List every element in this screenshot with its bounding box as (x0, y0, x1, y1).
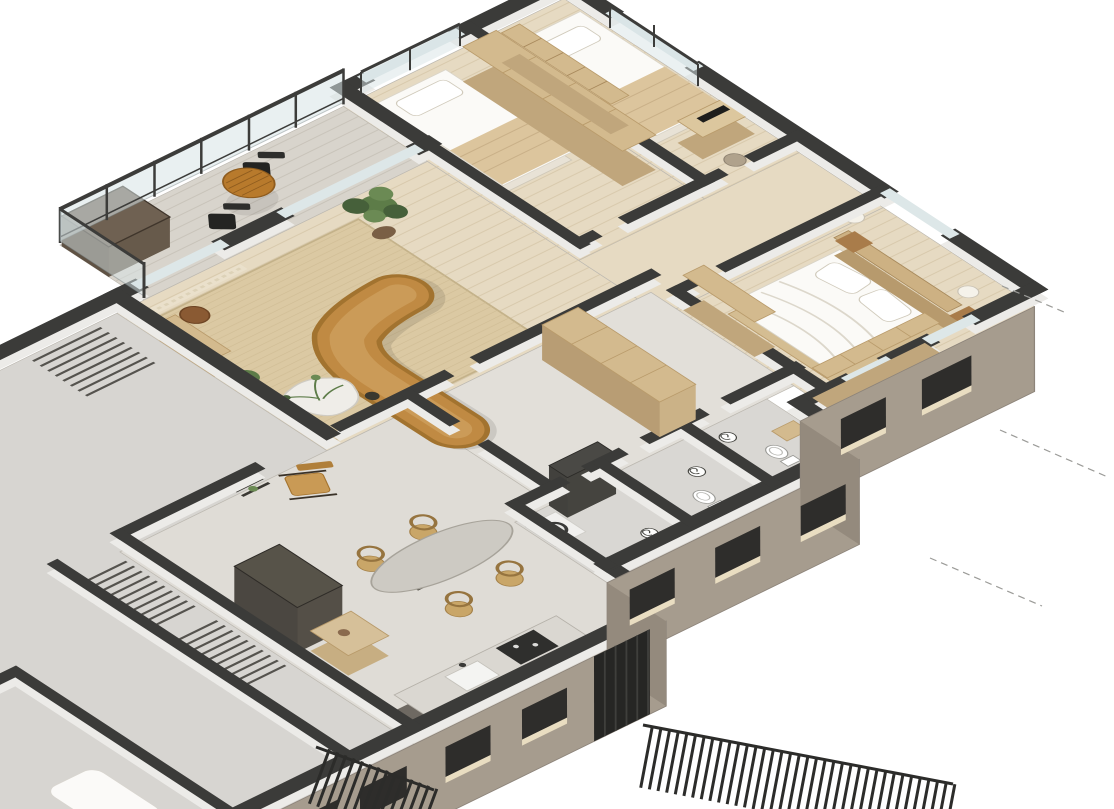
floorplan-svg (0, 0, 1114, 809)
lower-floor-railing (645, 757, 951, 809)
dashed-guide-line (1000, 430, 1110, 478)
railing-rail (643, 725, 953, 784)
dashed-guide-line (930, 558, 1042, 606)
apartment-plan (0, 0, 1114, 809)
floorplan-render (0, 0, 1114, 809)
